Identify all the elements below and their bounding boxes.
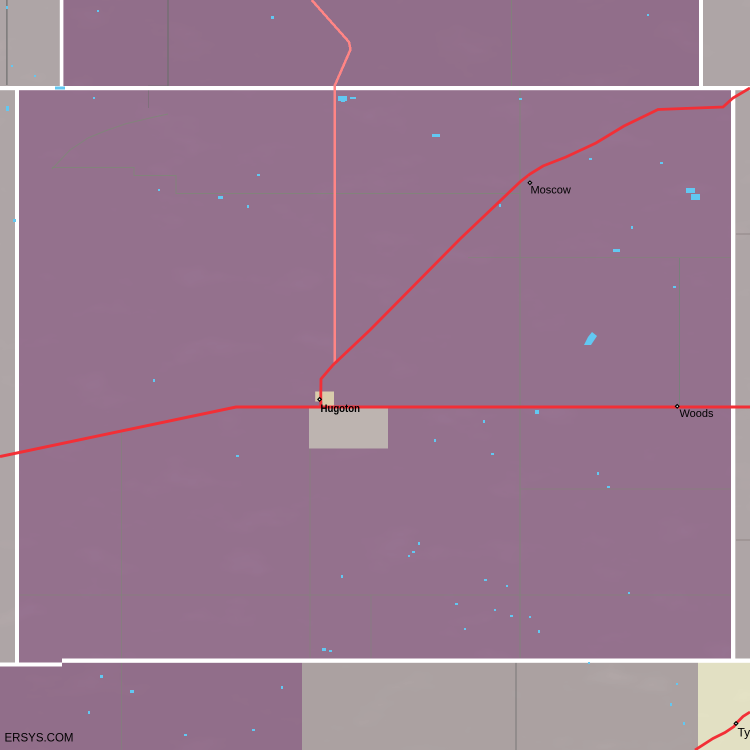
svg-text:Ty: Ty	[738, 726, 750, 740]
svg-text:Hugoton: Hugoton	[321, 403, 361, 415]
svg-text:Woods: Woods	[680, 408, 715, 420]
svg-text:ERSYS.COM: ERSYS.COM	[5, 733, 74, 745]
svg-text:Moscow: Moscow	[531, 185, 571, 197]
